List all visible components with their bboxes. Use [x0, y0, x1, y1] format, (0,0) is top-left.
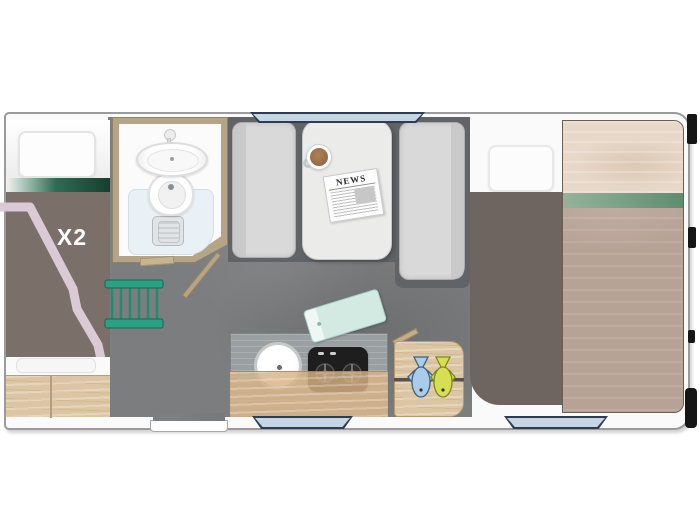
rear-trim-2 — [688, 227, 696, 248]
window-bottom-right — [504, 416, 608, 429]
rear-trim-4 — [685, 388, 697, 428]
coffee — [310, 148, 328, 166]
washbasin — [136, 142, 208, 177]
stove-indicator-1 — [318, 352, 324, 355]
dinette-left-bench — [232, 122, 296, 258]
dinette-right-bench — [399, 122, 465, 280]
window-top-glass — [253, 114, 422, 121]
fish-pair — [394, 341, 464, 417]
right-bench-backrest — [451, 123, 464, 279]
rear-trim-1 — [687, 114, 697, 144]
rear-bed-mattress — [470, 192, 562, 405]
wood-panel-light-section — [563, 121, 683, 193]
toilet-flush — [168, 184, 174, 190]
rear-bed-pillow — [488, 145, 554, 192]
window-bottom-left-glass — [255, 418, 350, 427]
bunk-ladder — [104, 277, 166, 333]
rear-trim-3 — [688, 330, 695, 343]
drawer-left — [6, 376, 52, 418]
floorplan-canvas: X2 NEWS — [0, 0, 700, 525]
coffee-cup — [306, 144, 332, 170]
storage-drawers — [6, 375, 110, 417]
bunk-capacity-label: X2 — [40, 224, 104, 251]
entry-step — [150, 420, 228, 432]
bunk-green-stripe — [6, 178, 110, 192]
entry-door-opening — [153, 413, 225, 421]
shower-drain-grate — [158, 221, 180, 243]
newspaper-photo — [354, 187, 376, 205]
bunk-pillow — [18, 131, 96, 178]
fish-blue — [408, 357, 434, 397]
bunk-edge-trim — [0, 195, 115, 365]
fish-yellow — [431, 357, 455, 397]
left-bench-backrest — [233, 123, 246, 257]
washbasin-drain — [170, 157, 174, 161]
newspaper: NEWS — [323, 168, 385, 223]
kitchen-sink-drain — [277, 365, 282, 370]
window-top — [250, 112, 425, 123]
wood-panel-green-stripe — [563, 193, 683, 208]
rear-bed-wood-panel — [562, 120, 684, 413]
toilet — [148, 172, 194, 216]
shower-drain — [152, 216, 184, 246]
stove-indicator-2 — [330, 352, 336, 355]
window-bottom-right-glass — [507, 418, 605, 427]
counter-flap — [230, 371, 388, 417]
cab-cushion — [16, 358, 96, 373]
window-bottom-left — [252, 416, 353, 429]
